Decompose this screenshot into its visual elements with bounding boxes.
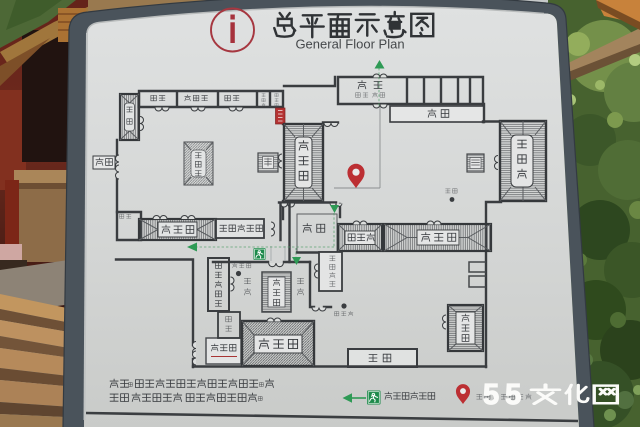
svg-text:55: 55 <box>483 379 527 411</box>
svg-text:General Floor Plan: General Floor Plan <box>295 37 404 52</box>
